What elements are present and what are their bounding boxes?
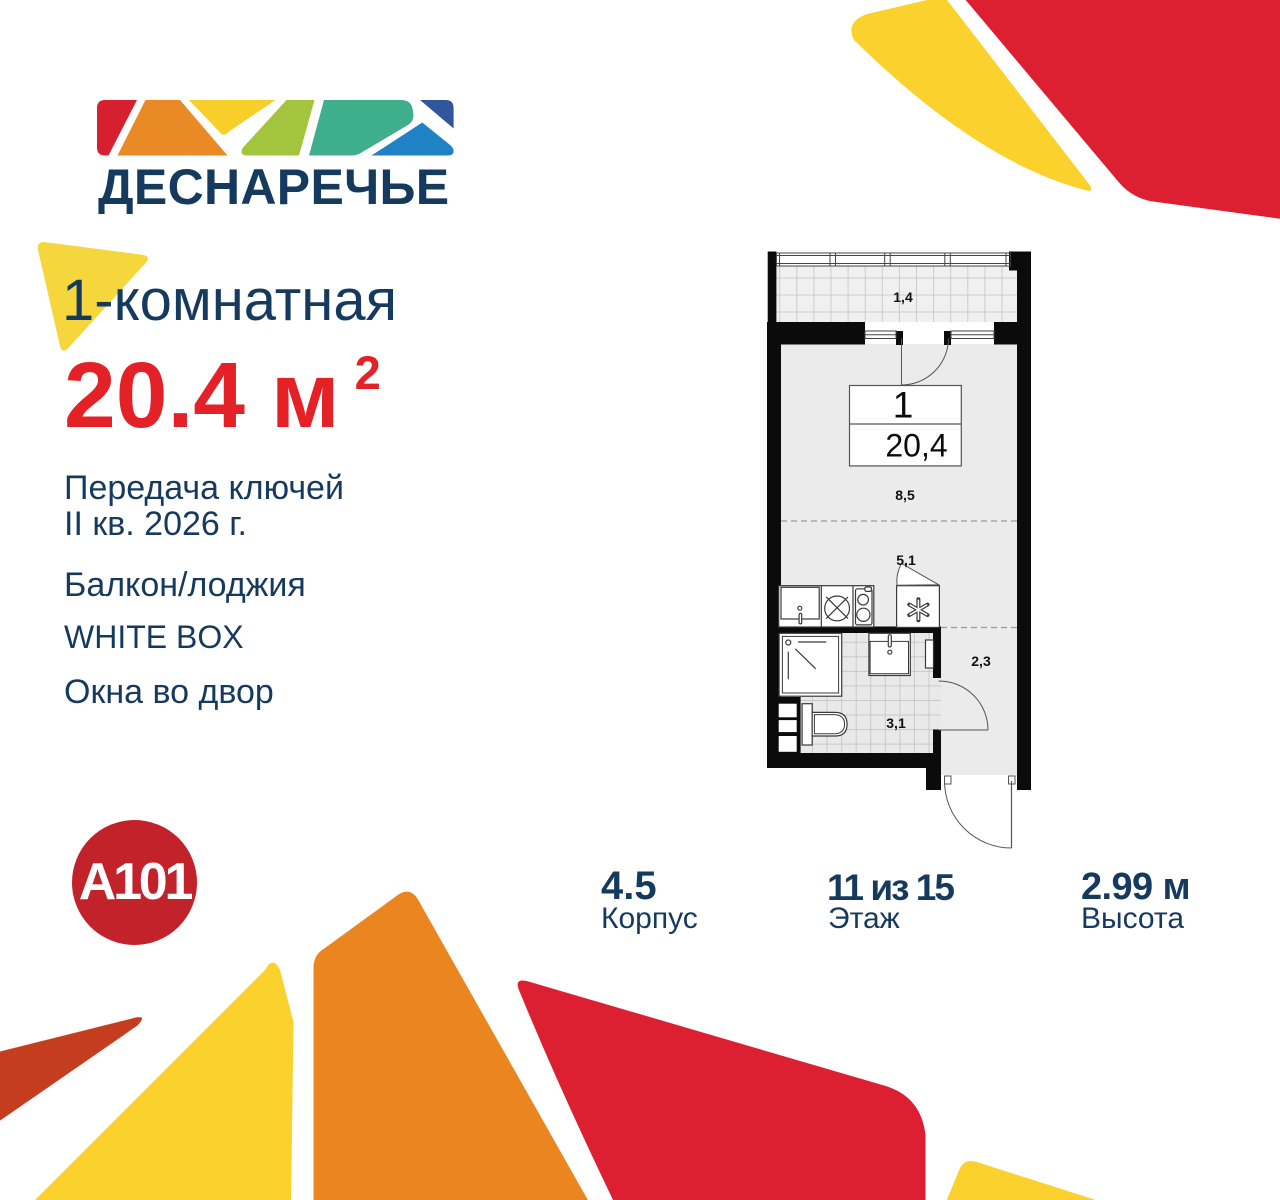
svg-text:1,4: 1,4 (893, 289, 913, 305)
svg-text:20,4: 20,4 (885, 427, 947, 463)
svg-text:1: 1 (893, 385, 914, 426)
svg-text:3,1: 3,1 (886, 715, 906, 731)
svg-text:8,5: 8,5 (895, 487, 915, 503)
svg-text:2,3: 2,3 (971, 653, 991, 669)
svg-text:5,1: 5,1 (896, 552, 916, 568)
